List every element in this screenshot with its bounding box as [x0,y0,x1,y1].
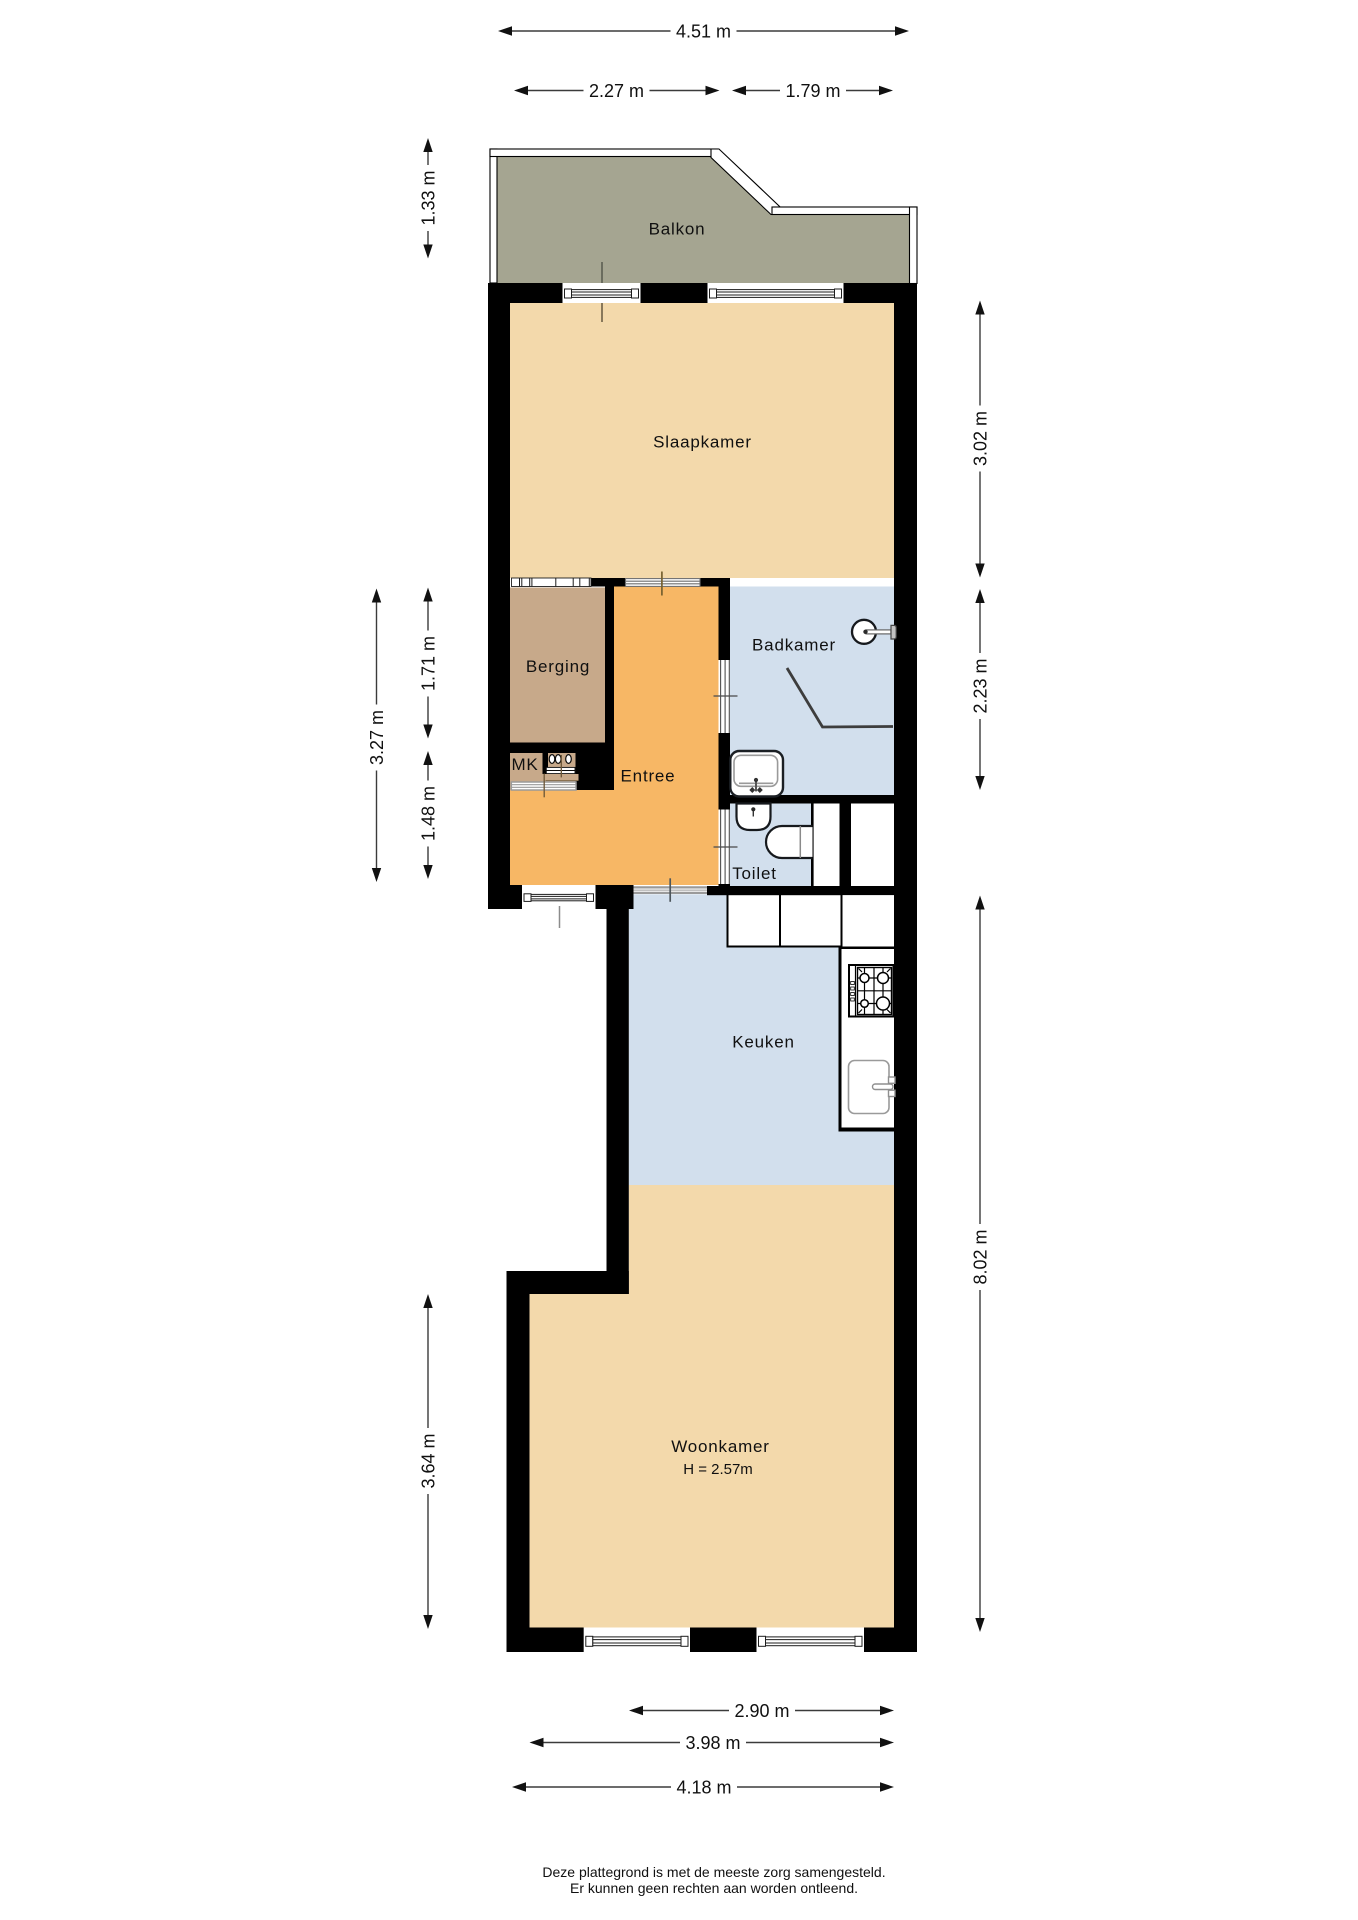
svg-text:Entree: Entree [621,767,676,786]
svg-text:Keuken: Keuken [732,1033,794,1052]
svg-text:3.64 m: 3.64 m [418,1433,438,1488]
svg-text:3.98 m: 3.98 m [685,1733,740,1753]
svg-text:1.48 m: 1.48 m [418,786,438,841]
svg-text:3.02 m: 3.02 m [970,411,990,466]
svg-text:Slaapkamer: Slaapkamer [653,433,752,452]
svg-text:1.79 m: 1.79 m [785,81,840,101]
svg-text:1.71 m: 1.71 m [418,636,438,691]
svg-text:Er kunnen geen rechten aan wor: Er kunnen geen rechten aan worden ontlee… [570,1880,858,1896]
svg-text:3.27 m: 3.27 m [367,710,387,765]
svg-text:4.18 m: 4.18 m [676,1777,731,1797]
svg-text:Deze plattegrond is met de mee: Deze plattegrond is met de meeste zorg s… [542,1864,885,1880]
svg-text:Toilet: Toilet [732,864,777,883]
svg-text:Berging: Berging [526,657,590,676]
svg-text:Balkon: Balkon [649,220,706,239]
svg-text:8.02 m: 8.02 m [970,1229,990,1284]
svg-text:1.33 m: 1.33 m [418,170,438,225]
svg-text:2.27 m: 2.27 m [589,81,644,101]
svg-text:4.51 m: 4.51 m [676,21,731,41]
svg-text:Woonkamer: Woonkamer [671,1437,770,1456]
svg-text:2.23 m: 2.23 m [970,658,990,713]
svg-text:H = 2.57m: H = 2.57m [683,1461,753,1478]
svg-text:Badkamer: Badkamer [752,636,836,655]
svg-text:2.90 m: 2.90 m [734,1701,789,1721]
svg-text:MK: MK [511,755,538,774]
